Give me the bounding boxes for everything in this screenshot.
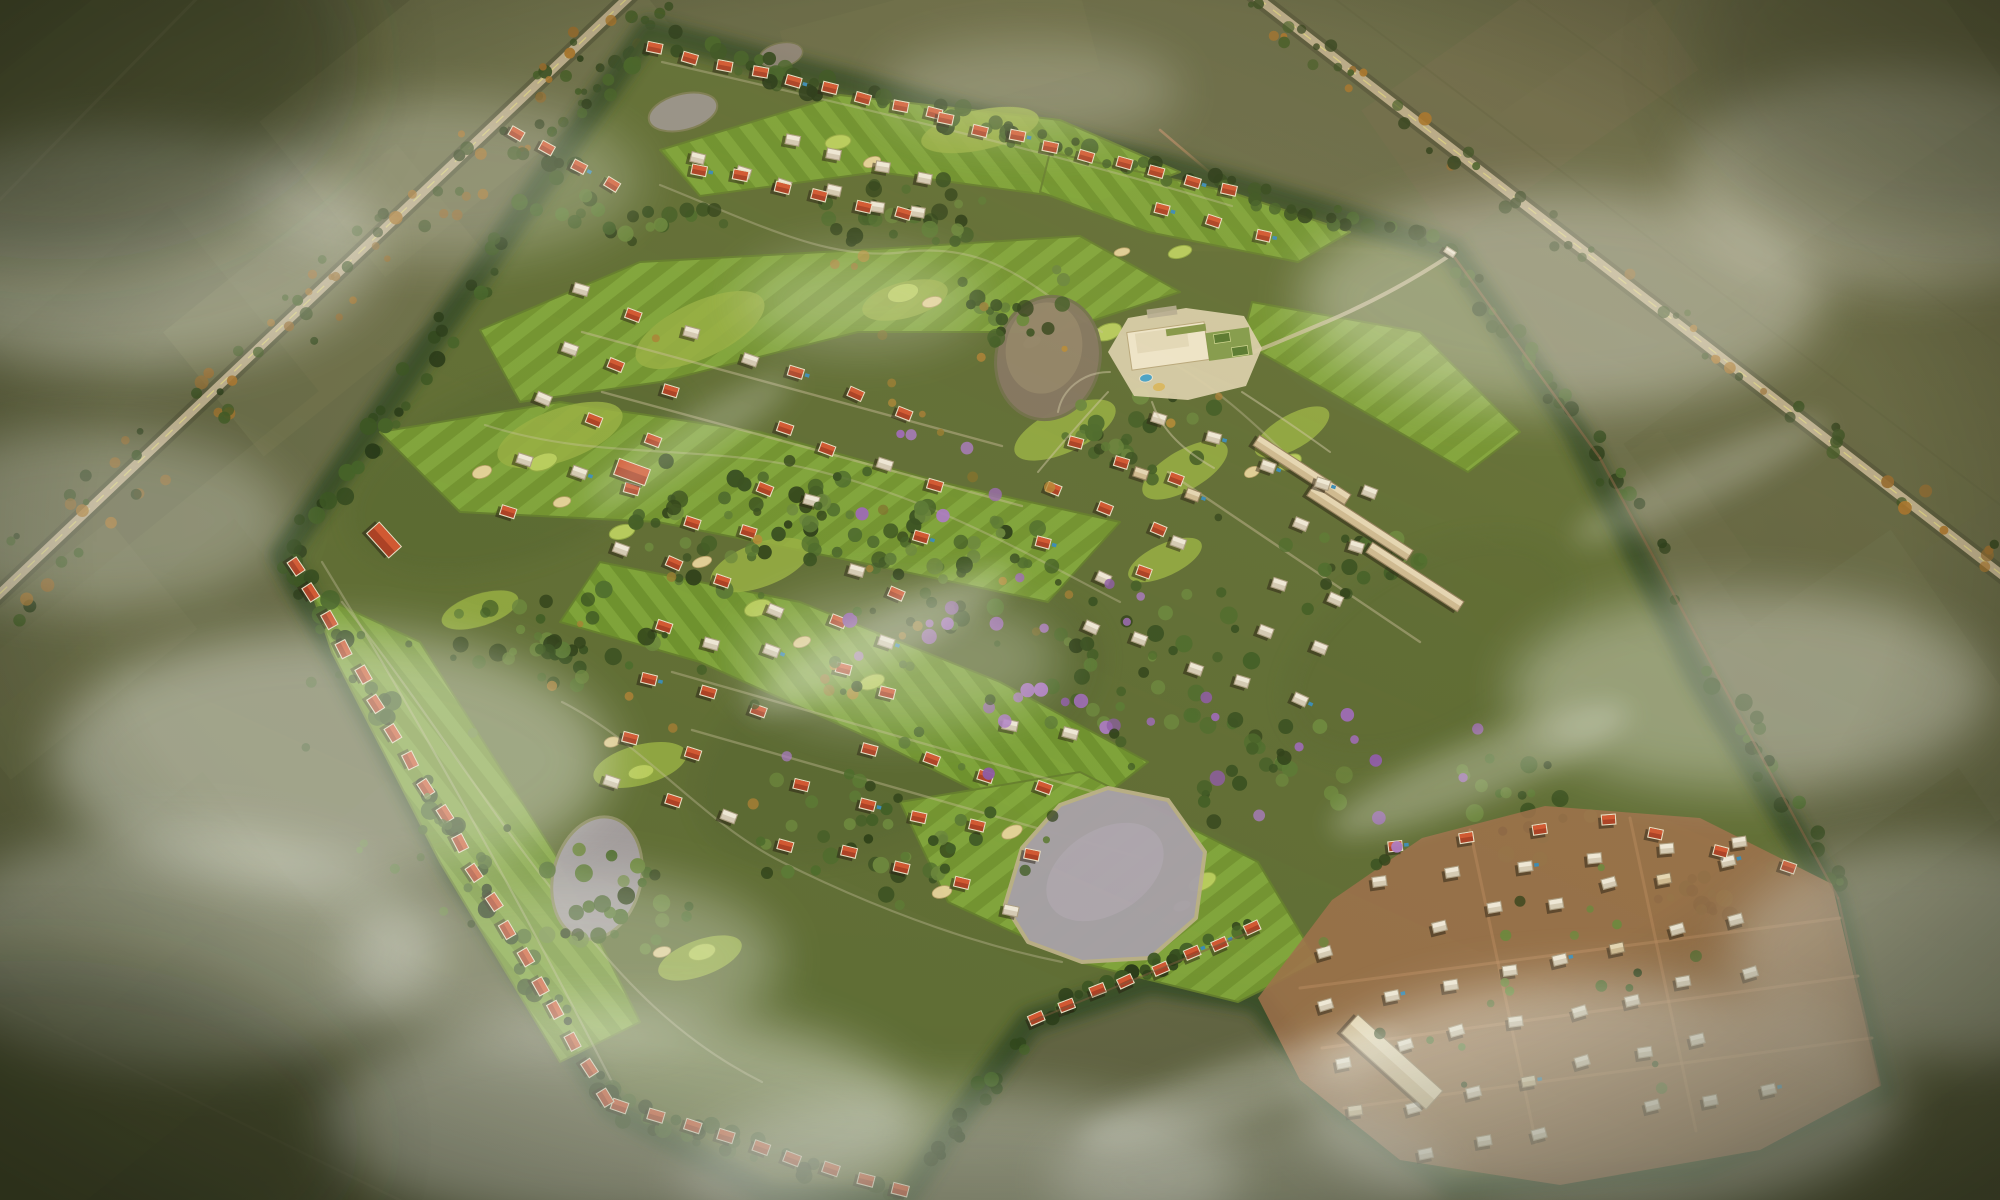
scene-svg [0,0,2000,1200]
aerial-masterplan-render [0,0,2000,1200]
render-layers [0,0,2000,1200]
